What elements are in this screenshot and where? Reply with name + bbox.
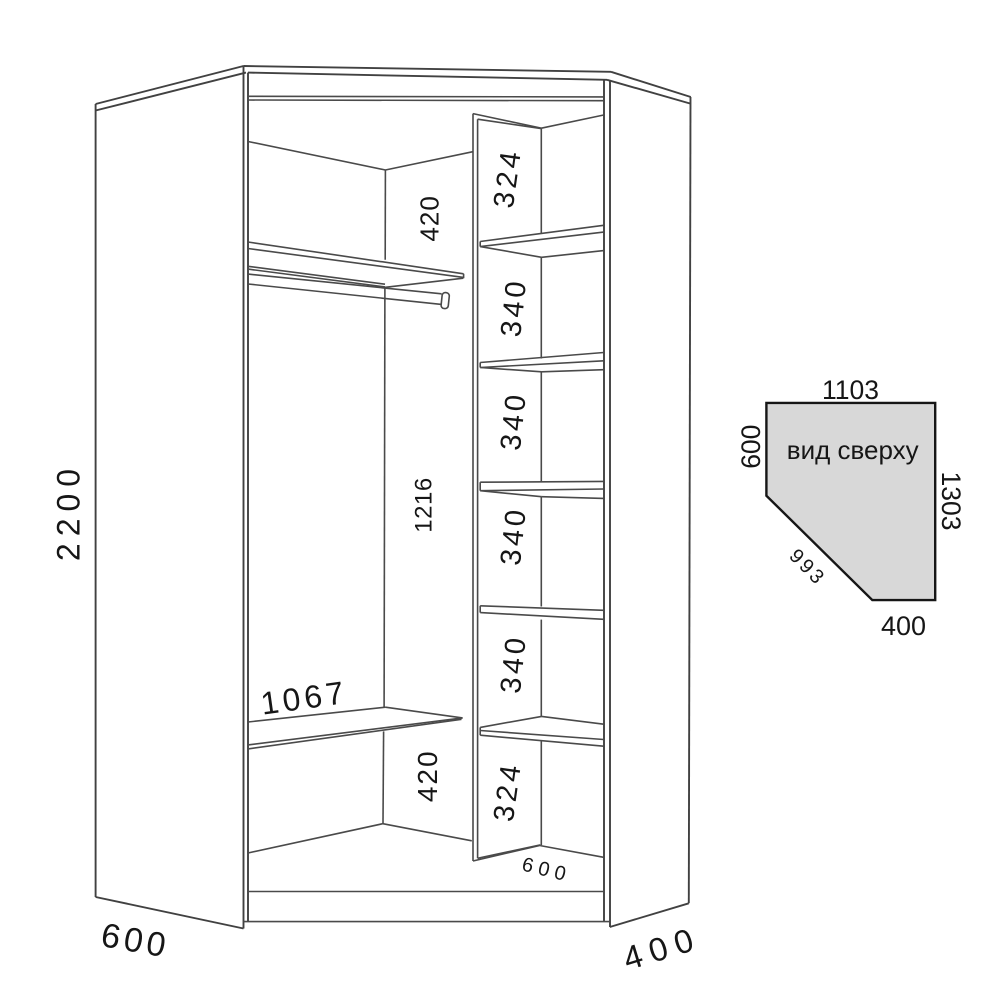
svg-text:1067: 1067 [259, 674, 350, 722]
svg-text:1103: 1103 [822, 375, 879, 405]
svg-text:340: 340 [495, 277, 533, 339]
svg-text:600: 600 [98, 916, 172, 965]
svg-text:340: 340 [495, 633, 533, 695]
svg-text:1303: 1303 [936, 472, 966, 531]
svg-text:420: 420 [414, 195, 444, 241]
svg-text:340: 340 [495, 505, 533, 567]
svg-text:420: 420 [412, 749, 443, 802]
svg-text:600: 600 [736, 425, 766, 469]
svg-text:400: 400 [881, 611, 926, 641]
svg-text:вид сверху: вид сверху [787, 435, 919, 465]
svg-text:1216: 1216 [410, 477, 437, 532]
svg-text:2200: 2200 [50, 462, 86, 561]
svg-text:340: 340 [495, 390, 533, 452]
svg-text:600: 600 [520, 854, 574, 887]
svg-text:324: 324 [488, 759, 528, 823]
svg-text:324: 324 [488, 146, 528, 210]
svg-text:400: 400 [619, 919, 705, 977]
